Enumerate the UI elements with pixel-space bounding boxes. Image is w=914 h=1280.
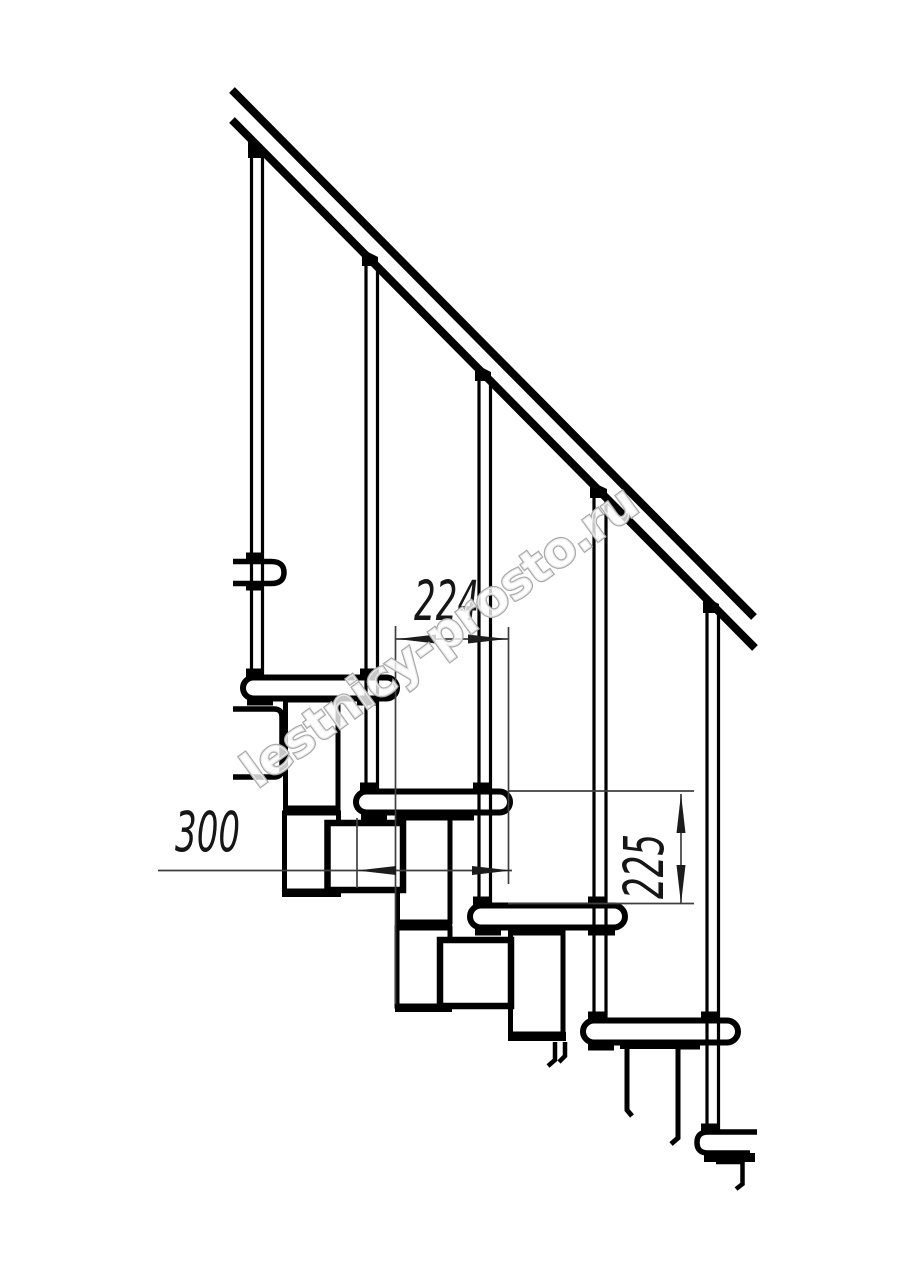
arrow-rise-down: [677, 865, 686, 904]
module-sleeve-1: [328, 823, 404, 890]
staircase-drawing: 224 300 225 lestnicy-prosto.ru: [0, 0, 914, 1280]
baluster-4: [590, 481, 607, 1020]
baluster-1: [248, 141, 263, 677]
tread-0-fragment: [233, 562, 284, 584]
module-sleeve-2: [440, 940, 511, 1006]
arrow-rise-up: [677, 794, 686, 833]
module-column-3-upper: [511, 933, 564, 1034]
tread-3: [470, 906, 625, 928]
watermark-text: lestnicy-prosto.ru: [231, 474, 648, 799]
baluster-5: [703, 596, 719, 1132]
module-column-3-band: [508, 1032, 566, 1041]
handrail-upper-line: [232, 90, 754, 617]
module-column-4-cut: [627, 1049, 678, 1144]
dim-depth-label: 300: [175, 801, 240, 865]
module-cut-lines-3: [548, 1042, 565, 1066]
tread-5-fragment: [697, 1132, 757, 1153]
tread-4: [583, 1021, 738, 1043]
tread-2: [356, 792, 510, 813]
dim-rise-label: 225: [613, 834, 677, 899]
technical-drawing-canvas: 224 300 225 lestnicy-prosto.ru: [0, 0, 914, 1280]
tread-5-cut-step: [716, 1162, 743, 1189]
module-chain: [233, 700, 743, 1189]
